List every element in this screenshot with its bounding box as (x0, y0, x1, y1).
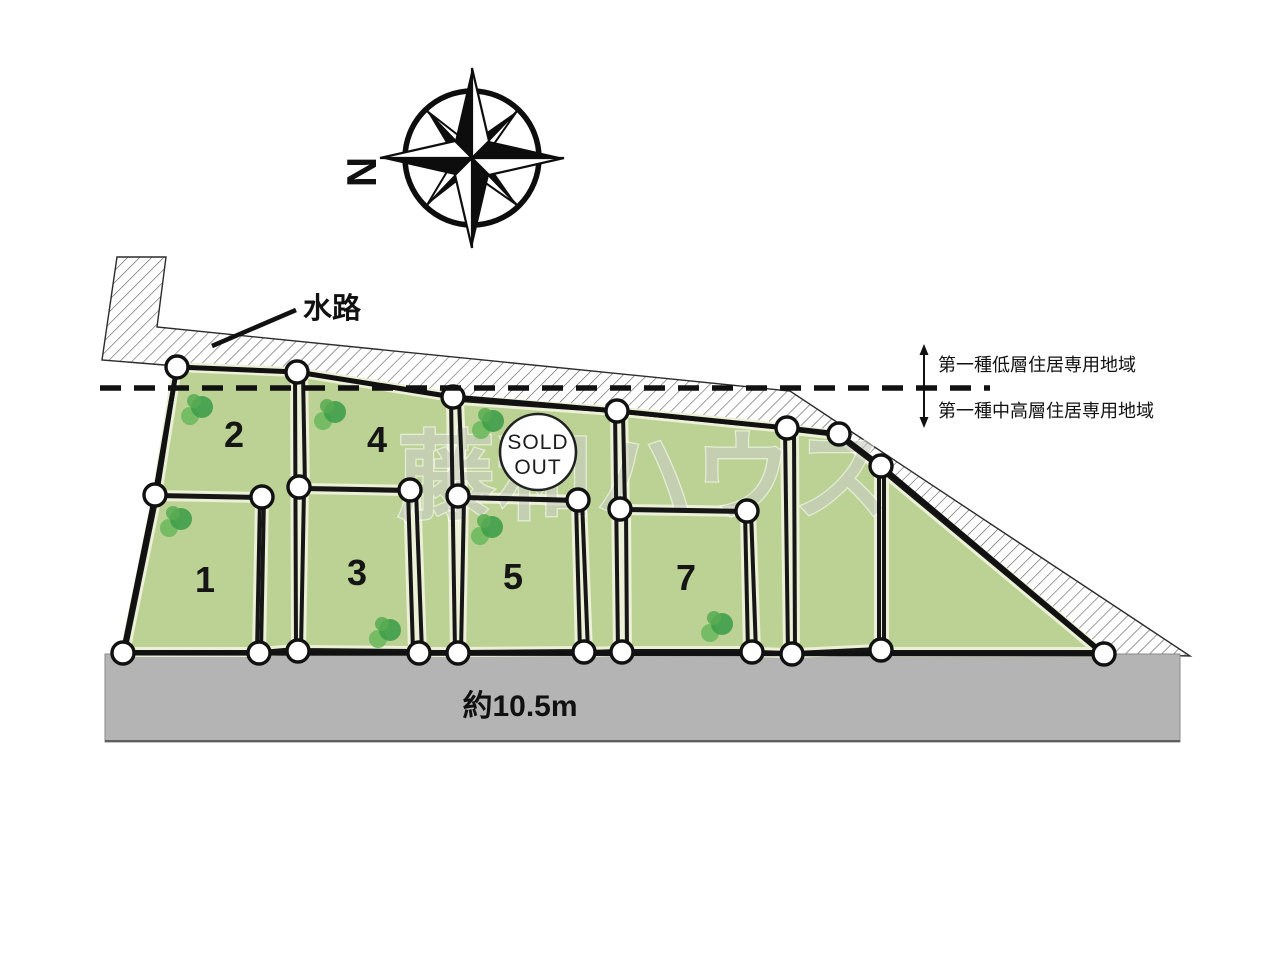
arrow-down-icon (920, 417, 929, 428)
sold-out-line1: SOLD (507, 431, 568, 454)
lot-number-3: 3 (347, 552, 367, 593)
sold-out-badge: SOLD OUT (500, 414, 576, 490)
waterway-annotation: 水路 (212, 292, 362, 346)
road-area (105, 654, 1180, 742)
lot-1-area (125, 496, 260, 652)
lot-number-4: 4 (367, 419, 387, 460)
zoning-upper-label: 第一種低層住居専用地域 (938, 355, 1136, 375)
compass-cardinal-points (380, 68, 564, 248)
north-label: N (338, 157, 385, 187)
lot-number-2: 2 (224, 414, 244, 455)
zoning-lower-label: 第一種中高層住居専用地域 (938, 401, 1154, 421)
lot-layout-drawing: 藤和ハウス (0, 0, 1280, 960)
waterway-label: 水路 (303, 292, 362, 325)
road-width-label: 約10.5m (462, 690, 577, 723)
site-plan-page: 藤和ハウス (0, 0, 1280, 960)
arrow-up-icon (920, 344, 929, 355)
sold-out-line2: OUT (514, 456, 561, 479)
company-watermark: 藤和ハウス (398, 423, 893, 532)
lot-number-5: 5 (503, 556, 523, 597)
lot-number-7: 7 (676, 557, 696, 598)
lot-number-1: 1 (195, 559, 215, 600)
compass-rose: N (338, 68, 564, 248)
